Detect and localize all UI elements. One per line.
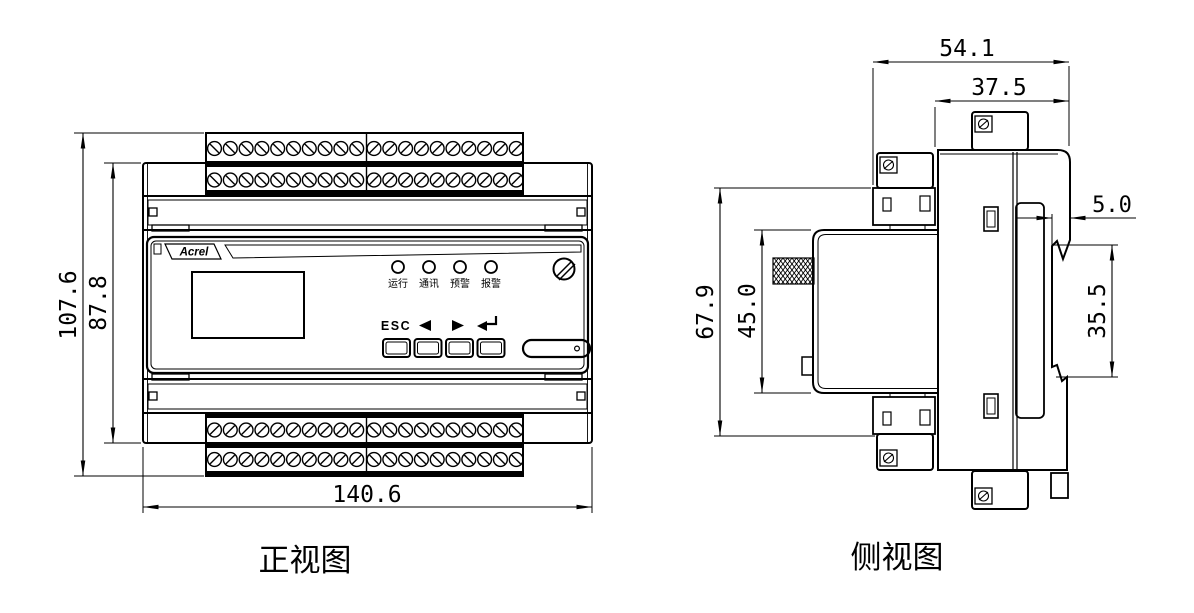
enter-arrow-icon [477, 316, 496, 331]
terminal-screw [415, 423, 429, 437]
terminal-screw [462, 423, 476, 437]
terminal-screw [271, 173, 285, 187]
front-view-caption: 正视图 [259, 543, 352, 578]
left-arrow-icon [419, 320, 431, 331]
side-bezel [773, 230, 937, 393]
terminal-screw [318, 142, 332, 156]
led-alarm-icon [485, 261, 497, 273]
terminal-screw [239, 423, 253, 437]
terminal-screw [430, 173, 444, 187]
mount-hole-right [577, 208, 585, 216]
terminal-screw [367, 173, 381, 187]
terminal-screw [446, 142, 460, 156]
terminal-screw [223, 142, 237, 156]
terminal-screw [399, 423, 413, 437]
terminal-screw [494, 142, 508, 156]
esc-key-label: ESC [381, 319, 411, 333]
terminal-screw [446, 453, 460, 467]
front-housing-outline [143, 163, 592, 443]
front-top-terminal-block [206, 133, 523, 196]
dim-rail-hook: 5.0 [1092, 193, 1132, 218]
terminal-screw [208, 423, 222, 437]
led-prewarn-label: 预警 [450, 277, 470, 290]
terminal-screw [239, 142, 253, 156]
terminal-screw [415, 173, 429, 187]
terminal-screw [318, 423, 332, 437]
terminal-screw [494, 453, 508, 467]
terminal-screw [255, 423, 269, 437]
enter-button[interactable] [478, 339, 505, 357]
terminal-screw [255, 173, 269, 187]
terminal-screw [383, 173, 397, 187]
terminal-screw [478, 423, 492, 437]
terminal-screw [446, 423, 460, 437]
terminal-screw [383, 453, 397, 467]
terminal-screw [350, 423, 364, 437]
side-terminal-upper-left [873, 153, 935, 230]
side-terminal-upper-right [972, 112, 1028, 150]
terminal-screw [318, 173, 332, 187]
terminal-screw [462, 453, 476, 467]
terminal-screw [302, 173, 316, 187]
terminal-screw [287, 173, 301, 187]
terminal-screw [383, 423, 397, 437]
dim-body-height: 87.8 [86, 275, 112, 330]
terminal-screw [367, 142, 381, 156]
front-lower-band [143, 374, 592, 413]
terminal-screw [302, 423, 316, 437]
terminal-screw [399, 142, 413, 156]
terminal-screw [239, 173, 253, 187]
label-slot [523, 340, 590, 357]
led-run-icon [392, 261, 404, 273]
terminal-screw [415, 453, 429, 467]
terminal-screw [287, 142, 301, 156]
front-view: Acrel 运行 通讯 预警 报警 ESC [56, 133, 592, 578]
led-comm-label: 通讯 [419, 278, 439, 290]
logo-stripe [225, 245, 581, 258]
terminal-screw [399, 453, 413, 467]
terminal-screw [334, 142, 348, 156]
terminal-screw [367, 453, 381, 467]
terminal-screw [208, 173, 222, 187]
terminal-screw [367, 423, 381, 437]
dim-mid-height: 67.9 [693, 284, 719, 339]
led-run-label: 运行 [388, 277, 408, 290]
front-upper-band [143, 196, 592, 231]
terminal-screw [415, 142, 429, 156]
led-comm-icon [423, 261, 435, 273]
bottom-foot [1051, 473, 1068, 498]
terminal-screw [383, 142, 397, 156]
terminal-screw [334, 453, 348, 467]
terminal-screw [478, 173, 492, 187]
left-button[interactable] [415, 339, 442, 357]
clip-window-upper [984, 207, 998, 231]
front-bottom-terminal-block [206, 413, 523, 476]
side-view: 54.1 37.5 5.0 67.9 45.0 35.5 侧视图 [693, 36, 1136, 575]
terminal-screw [478, 142, 492, 156]
led-prewarn-icon [454, 261, 466, 273]
terminal-screw [271, 423, 285, 437]
terminal-screw [446, 173, 460, 187]
panel-screw-icon [554, 259, 576, 281]
terminal-screw [462, 142, 476, 156]
dim-total-depth: 54.1 [939, 36, 994, 62]
terminal-screw [302, 142, 316, 156]
side-terminal-lower-left [873, 393, 935, 470]
bezel-latch [802, 357, 813, 375]
terminal-screw [287, 423, 301, 437]
terminal-screw [208, 453, 222, 467]
drawing-sheet: Acrel 运行 通讯 预警 报警 ESC [0, 0, 1194, 613]
din-rail-slider [1016, 203, 1044, 418]
terminal-screw [509, 423, 523, 437]
terminal-screw [430, 142, 444, 156]
dim-rail-slot: 35.5 [1085, 283, 1111, 338]
terminal-screw [509, 173, 523, 187]
brand-logo: Acrel [179, 247, 210, 259]
terminal-screw [509, 453, 523, 467]
terminal-screw [223, 423, 237, 437]
side-body-outline [938, 150, 1070, 470]
led-indicators: 运行 通讯 预警 报警 [388, 261, 501, 290]
esc-button[interactable] [383, 339, 410, 357]
terminal-screw [334, 173, 348, 187]
terminal-screw [399, 173, 413, 187]
terminal-screw [208, 142, 222, 156]
right-arrow-icon [452, 320, 464, 331]
terminal-screw [239, 453, 253, 467]
clip-window-lower [984, 394, 998, 418]
side-terminal-lower-right [972, 471, 1028, 509]
terminal-screw [318, 453, 332, 467]
terminal-screw [430, 453, 444, 467]
terminal-screw [462, 173, 476, 187]
sealing-screw-knurl [773, 258, 814, 284]
terminal-screw [350, 142, 364, 156]
lcd-screen [192, 272, 304, 338]
terminal-screw [509, 142, 523, 156]
dim-total-width: 140.6 [332, 482, 401, 508]
terminal-screw [494, 423, 508, 437]
terminal-screw [430, 423, 444, 437]
terminal-screw [494, 173, 508, 187]
terminal-screw [350, 173, 364, 187]
led-alarm-label: 报警 [481, 277, 501, 290]
right-button[interactable] [446, 339, 473, 357]
terminal-screw [255, 142, 269, 156]
terminal-screw [334, 423, 348, 437]
terminal-screw [271, 142, 285, 156]
terminal-screw [255, 453, 269, 467]
terminal-screw [287, 453, 301, 467]
terminal-screw [271, 453, 285, 467]
side-view-caption: 侧视图 [851, 540, 944, 575]
dim-front-height: 45.0 [735, 283, 761, 338]
dimension-drawing: Acrel 运行 通讯 预警 报警 ESC [0, 0, 1194, 613]
front-panel: Acrel 运行 通讯 预警 报警 ESC [147, 237, 590, 373]
terminal-screw [478, 453, 492, 467]
dim-body-depth: 37.5 [971, 75, 1026, 101]
terminal-screw [350, 453, 364, 467]
mount-hole-left [149, 208, 157, 216]
dim-total-height: 107.6 [56, 270, 82, 339]
terminal-screw [223, 453, 237, 467]
terminal-screw [223, 173, 237, 187]
terminal-screw [302, 453, 316, 467]
